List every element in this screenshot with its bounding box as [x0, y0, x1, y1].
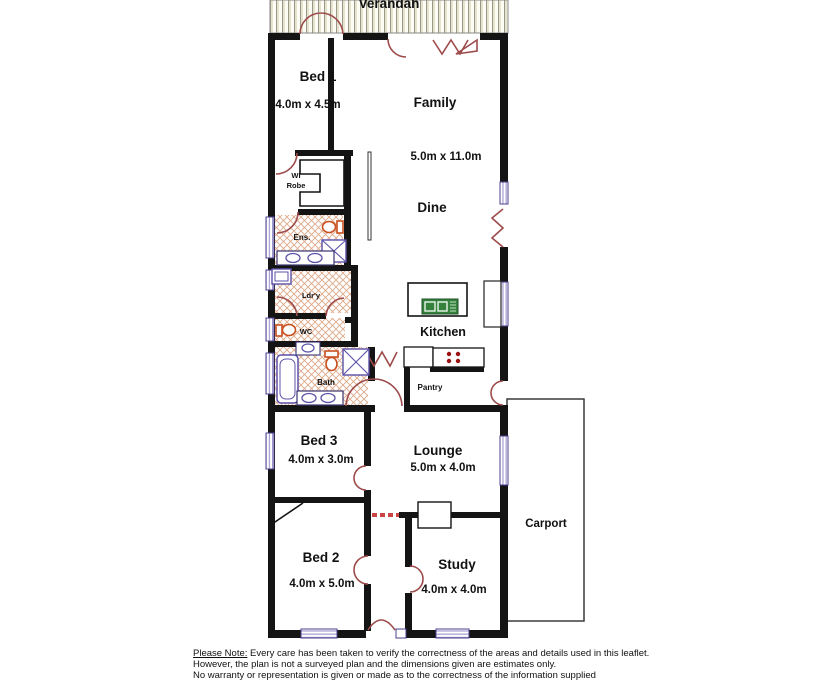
bed3-dims: 4.0m x 3.0m [288, 454, 353, 466]
window-family [500, 182, 508, 204]
kitchen-island [408, 283, 467, 316]
disclaimer-line1: Please Note: Every care has been taken t… [193, 648, 663, 659]
hall-screen-wall [368, 152, 371, 240]
opening-zigzag-top [433, 40, 468, 54]
disclaimer-line2: However, the plan is not a surveyed plan… [193, 659, 663, 670]
window-bed2 [301, 629, 337, 638]
toilet-ens [323, 221, 344, 233]
wirobe-label-line1: WI [291, 171, 300, 180]
bed1-dims: 4.0m x 4.5m [275, 99, 340, 111]
door-bed3 [354, 466, 366, 490]
verandah-label: Verandah [359, 0, 420, 11]
door-rear [368, 620, 395, 630]
window-wc [266, 318, 274, 341]
bed2-label: Bed 2 [303, 550, 340, 565]
family-label: Family [414, 95, 457, 110]
window-ens [266, 217, 274, 258]
kitchen-label: Kitchen [420, 325, 466, 339]
vanity-bath [297, 391, 343, 405]
study-label: Study [438, 557, 476, 572]
floorplan-page: Verandah Bed 1 4.0m x 4.5m Family 5.0m x… [0, 0, 828, 684]
wc-label: WC [300, 327, 313, 336]
ens-label: Ens. [294, 233, 311, 242]
bed2-dims: 4.0m x 5.0m [289, 578, 354, 590]
disclaimer-block: Please Note: Every care has been taken t… [193, 648, 663, 682]
window-study [436, 629, 469, 638]
laundry-tub [272, 269, 291, 284]
robe-shelving [300, 160, 344, 206]
disclaimer-line1-text: Every care has been taken to verify the … [247, 648, 649, 659]
shower-bath [343, 349, 369, 375]
window-lounge [500, 436, 508, 485]
carport-outline [507, 399, 584, 621]
wirobe-label-line2: Robe [287, 181, 306, 190]
toilet-bath [325, 351, 338, 371]
window-rear-small [396, 629, 406, 638]
ldry-label: Ldr'y [302, 291, 321, 300]
floorplan-drawing: Verandah Bed 1 4.0m x 4.5m Family 5.0m x… [0, 0, 828, 684]
dine-label: Dine [417, 200, 447, 215]
bed3-label: Bed 3 [301, 433, 338, 448]
family-dims: 5.0m x 11.0m [411, 151, 482, 163]
kitchen-bench [404, 347, 484, 367]
door-carport [491, 381, 503, 405]
opening-zigzag-right [492, 209, 503, 247]
lounge-label: Lounge [414, 443, 463, 458]
pantry-label: Pantry [418, 383, 443, 392]
disclaimer-line3: No warranty or representation is given o… [193, 670, 663, 681]
basin-bath [296, 342, 320, 355]
window-bed3 [266, 433, 274, 469]
window-bath [266, 353, 274, 394]
door-family [388, 39, 406, 57]
study-dims: 4.0m x 4.0m [421, 584, 486, 596]
disclaimer-note-label: Please Note: [193, 648, 247, 659]
bathtub [277, 355, 298, 403]
toilet-wc [276, 325, 296, 337]
lounge-dims: 5.0m x 4.0m [410, 462, 475, 474]
bed1-label: Bed 1 [300, 69, 337, 84]
window-seat-box [484, 281, 501, 327]
bed2-corner-robe [272, 503, 303, 524]
fireplace [418, 502, 451, 528]
bath-label: Bath [317, 378, 335, 387]
vanity-ens [277, 251, 334, 265]
carport-label: Carport [525, 518, 567, 530]
door-bed2 [354, 556, 368, 584]
